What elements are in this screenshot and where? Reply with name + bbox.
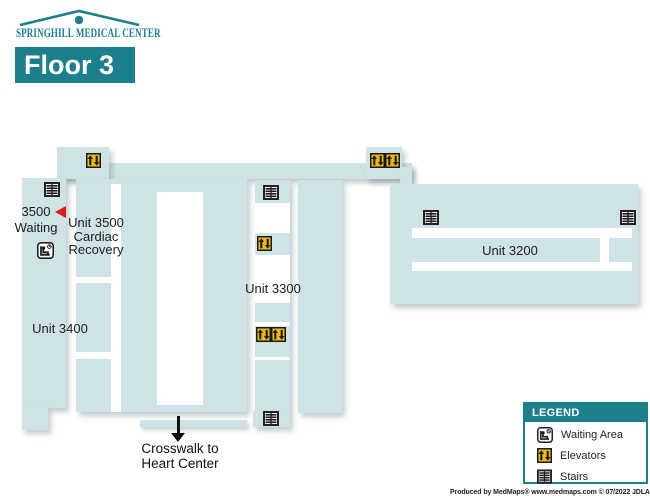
room-divider bbox=[76, 352, 111, 359]
stairs-icon bbox=[44, 182, 60, 197]
stairs-icon bbox=[263, 185, 279, 200]
elevator-icon bbox=[86, 153, 101, 168]
location-pointer-icon bbox=[55, 206, 66, 218]
unit-3300-label: Unit 3300 bbox=[241, 282, 305, 296]
crosswalk-arrow-icon bbox=[171, 433, 185, 442]
room-divider bbox=[255, 322, 290, 326]
unit-3400-label: Unit 3400 bbox=[28, 322, 92, 336]
legend-label: Waiting Area bbox=[561, 429, 623, 441]
south-edge-block bbox=[140, 420, 247, 427]
corridor-cutout bbox=[255, 203, 290, 233]
stairs-icon bbox=[620, 210, 636, 225]
elevator-icon bbox=[537, 448, 552, 463]
legend-title: LEGEND bbox=[525, 404, 646, 422]
unit3200-corridor bbox=[412, 228, 632, 238]
unit3300-east-block bbox=[298, 180, 342, 413]
elevator-icon bbox=[257, 236, 272, 251]
stairs-icon bbox=[263, 411, 279, 426]
unit-3500-label: Unit 3500 Cardiac Recovery bbox=[58, 216, 134, 257]
legend-label: Elevators bbox=[560, 450, 606, 462]
floor-title: Floor 3 bbox=[15, 47, 135, 83]
room-divider bbox=[76, 277, 111, 283]
stairs-icon bbox=[423, 210, 439, 225]
elevator-icon bbox=[271, 327, 286, 342]
elevator-icon bbox=[370, 153, 385, 168]
courtyard-cutout bbox=[157, 192, 203, 405]
west-wing-foot-block bbox=[22, 408, 48, 430]
map-credit: Produced by MedMaps® www.medmaps.com © 0… bbox=[450, 489, 645, 496]
stairs-icon bbox=[537, 469, 552, 484]
legend-item-stairs: Stairs bbox=[537, 468, 646, 485]
unit-3200-label: Unit 3200 bbox=[420, 244, 600, 258]
northwest-elevator-block bbox=[57, 147, 109, 179]
crosswalk-arrow-shaft bbox=[177, 416, 180, 434]
room-divider bbox=[600, 238, 609, 262]
waiting-area-icon bbox=[37, 242, 54, 259]
legend-panel: LEGEND Waiting Area Elevators Stairs bbox=[523, 402, 648, 484]
floor-map-page: SPRINGHILL MEDICAL CENTER Floor 3 3500 W… bbox=[0, 0, 650, 502]
legend-item-elevators: Elevators bbox=[537, 447, 646, 464]
crosswalk-label: Crosswalk to Heart Center bbox=[128, 441, 232, 471]
hospital-name: SPRINGHILL MEDICAL CENTER bbox=[16, 26, 110, 41]
elevator-icon bbox=[385, 153, 400, 168]
waiting-area-icon bbox=[537, 427, 553, 443]
legend-label: Stairs bbox=[560, 471, 588, 483]
elevator-icon bbox=[256, 327, 271, 342]
unit3200-corridor bbox=[412, 262, 632, 271]
hospital-roof-logo-icon bbox=[15, 8, 145, 28]
room-divider bbox=[255, 357, 290, 360]
legend-item-waiting-area: Waiting Area bbox=[537, 426, 646, 443]
top-corridor-band bbox=[63, 163, 412, 179]
